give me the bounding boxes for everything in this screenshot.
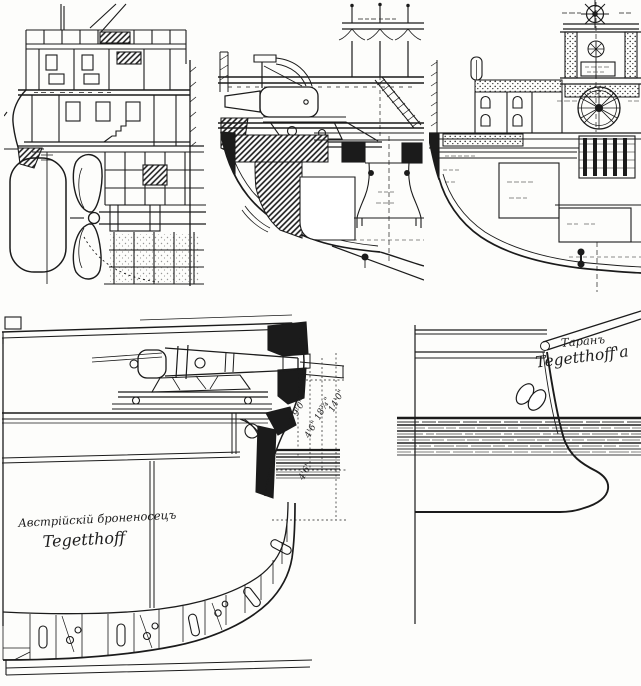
rudder (10, 152, 66, 284)
steering-gear-wheel (578, 87, 620, 129)
waterline-hatching (397, 418, 641, 455)
ram-bow-drawing (397, 306, 641, 638)
armour-backing-hatched (255, 162, 302, 238)
conning-tower (560, 2, 641, 132)
midship-section-drawing (0, 308, 346, 686)
double-bottom-framing (3, 502, 295, 660)
accommodation-ladder (375, 77, 421, 128)
lower-compartment (559, 208, 631, 242)
conning-tower-section-drawing (429, 0, 641, 300)
upper-side-armour (268, 322, 308, 356)
bowsprit (541, 311, 641, 351)
stern-section-drawing (4, 2, 210, 292)
deckhouse (475, 92, 562, 133)
hawse-holes (513, 381, 550, 414)
scanned-warship-drawing-page: Австрійскій броненосецъ Tegetthoff Таран… (0, 0, 641, 686)
flying-bridge (339, 3, 424, 136)
waterline-hatching (276, 450, 340, 478)
propeller (70, 155, 102, 279)
bow-section-drawing (218, 0, 424, 300)
hull-outer-plating (439, 178, 641, 273)
side-armour-hatched (235, 135, 328, 162)
stokehold-grate (579, 136, 635, 178)
magazine-compartment (499, 163, 559, 218)
conning-tower-structure (429, 0, 641, 292)
stern-structure (4, 4, 206, 286)
ram-bow-structure (397, 311, 641, 624)
ram-stem-profile (415, 352, 608, 512)
bow-structure (218, 3, 424, 280)
broadside-gun (92, 345, 298, 409)
midship-structure (2, 315, 346, 675)
companionway-stairs (104, 121, 132, 142)
